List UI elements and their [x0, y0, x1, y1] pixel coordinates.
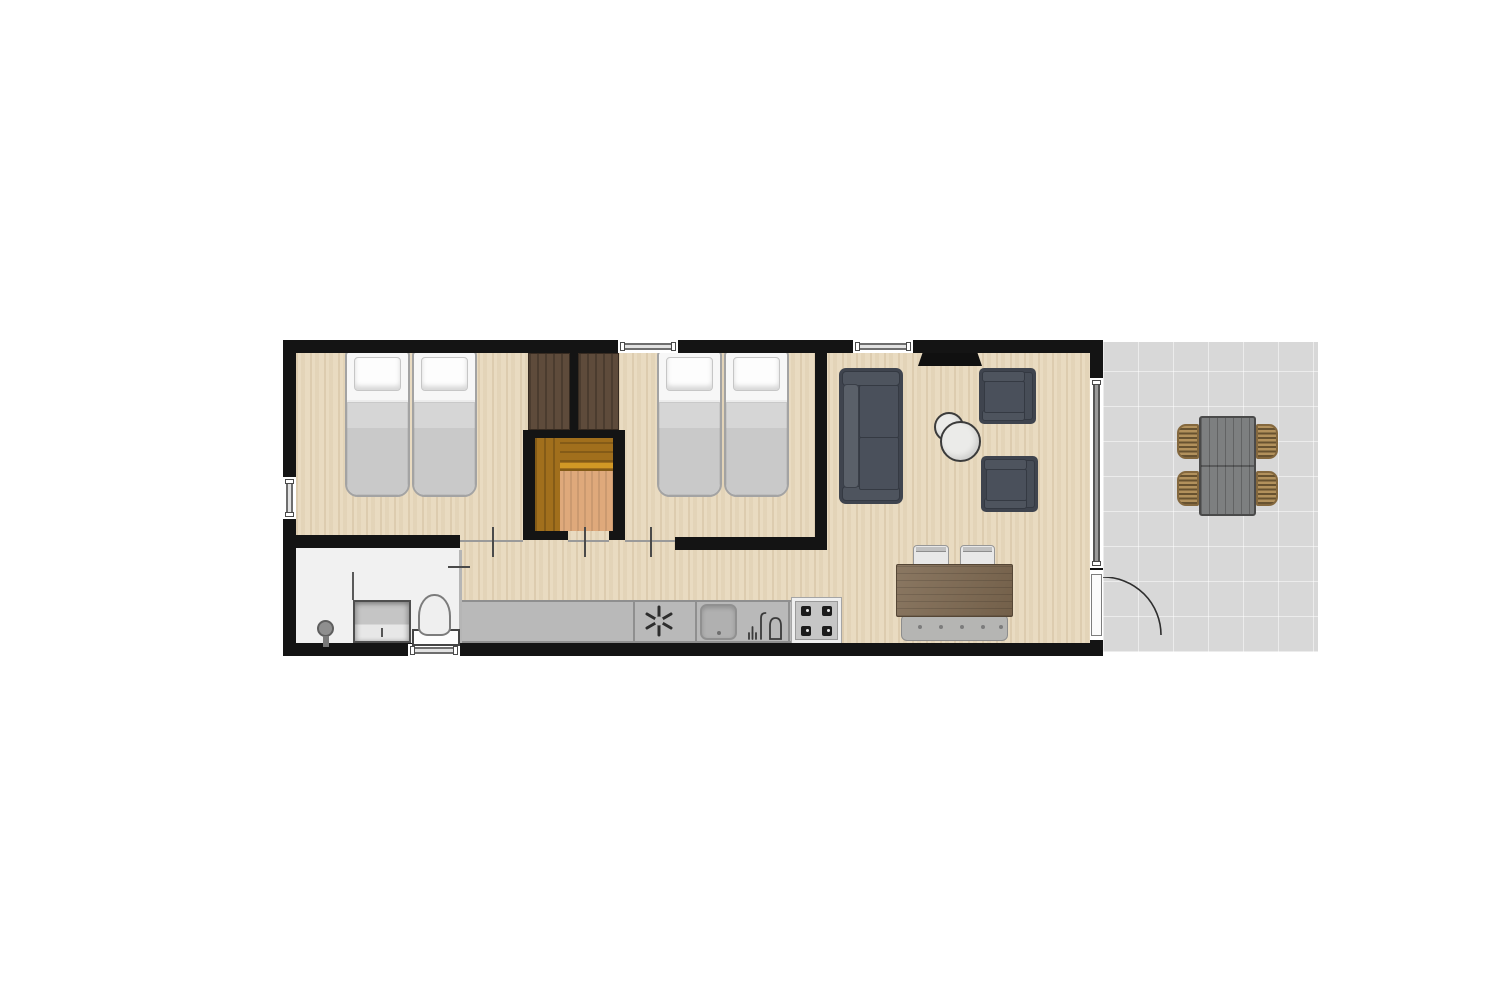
pillow [421, 357, 468, 391]
wicker-chair [1177, 424, 1199, 459]
closet-wall-left [523, 430, 535, 540]
sliding-glass-door [1090, 378, 1103, 568]
closet-wall-top [523, 430, 625, 438]
shower-screen [352, 572, 354, 600]
bedroom-1-window [283, 477, 296, 519]
bed-blanket [726, 400, 787, 495]
bedroom-2-window [618, 340, 678, 353]
shower-stand [323, 636, 329, 647]
bed-blanket [414, 400, 475, 495]
closet-wall-bottom [523, 531, 568, 540]
closet-doorway [568, 540, 609, 542]
single-bed [345, 350, 410, 497]
bed-blanket [347, 400, 408, 495]
sofa-backrest [843, 384, 859, 488]
dining-bench [901, 614, 1008, 641]
armchair [981, 456, 1038, 512]
dining-table [896, 564, 1013, 617]
doorway-tick [448, 566, 470, 568]
bedroom2-living-wall [815, 353, 827, 550]
burner [801, 626, 811, 636]
tv [918, 353, 982, 366]
doorway-tick [584, 527, 586, 557]
single-bed [724, 350, 789, 497]
armchair-seat [986, 469, 1027, 501]
living-room-window [853, 340, 913, 353]
burner [801, 606, 811, 616]
hall-wall [675, 537, 827, 550]
toilet-bowl [418, 594, 451, 636]
outer-wall-bottom [283, 643, 1103, 656]
doorway-tick [650, 527, 652, 557]
floor-plan-canvas [0, 0, 1500, 1000]
shower-head [317, 620, 334, 637]
kitchen-sink [700, 604, 737, 640]
armchair [979, 368, 1036, 424]
wicker-chair [1256, 424, 1278, 459]
extractor-fan-icon [642, 604, 676, 638]
tap-icon [744, 602, 786, 642]
outer-wall-top [283, 340, 1103, 353]
sofa [839, 368, 903, 504]
burner [822, 626, 832, 636]
counter-divider [633, 600, 635, 643]
counter-divider [695, 600, 697, 643]
wicker-chair [1177, 471, 1199, 506]
entrance-door-swing-arc [1103, 577, 1162, 636]
closet-cabinet-side [535, 438, 560, 531]
sofa-seat-cushion [859, 385, 899, 438]
wardrobe [528, 353, 570, 430]
hob [791, 597, 842, 644]
pillow [666, 357, 713, 391]
bed-blanket [659, 400, 720, 495]
pillow [354, 357, 401, 391]
bathroom-wall-top [283, 535, 460, 548]
basin-tap [381, 628, 383, 637]
closet-wall-bottom [609, 531, 625, 540]
outdoor-table [1199, 416, 1256, 516]
burner [822, 606, 832, 616]
bedroom-divider-wall [570, 353, 578, 430]
pillow [733, 357, 780, 391]
wardrobe [578, 353, 619, 430]
entrance-door-leaf [1091, 574, 1102, 636]
armchair-seat [984, 381, 1025, 413]
sofa-seat-cushion [859, 437, 899, 490]
counter-divider [788, 600, 790, 643]
wicker-chair [1256, 471, 1278, 506]
closet-wall-right [613, 430, 625, 540]
doorway-tick [492, 527, 494, 557]
coffee-table-large [940, 421, 981, 462]
single-bed [657, 350, 722, 497]
single-bed [412, 350, 477, 497]
